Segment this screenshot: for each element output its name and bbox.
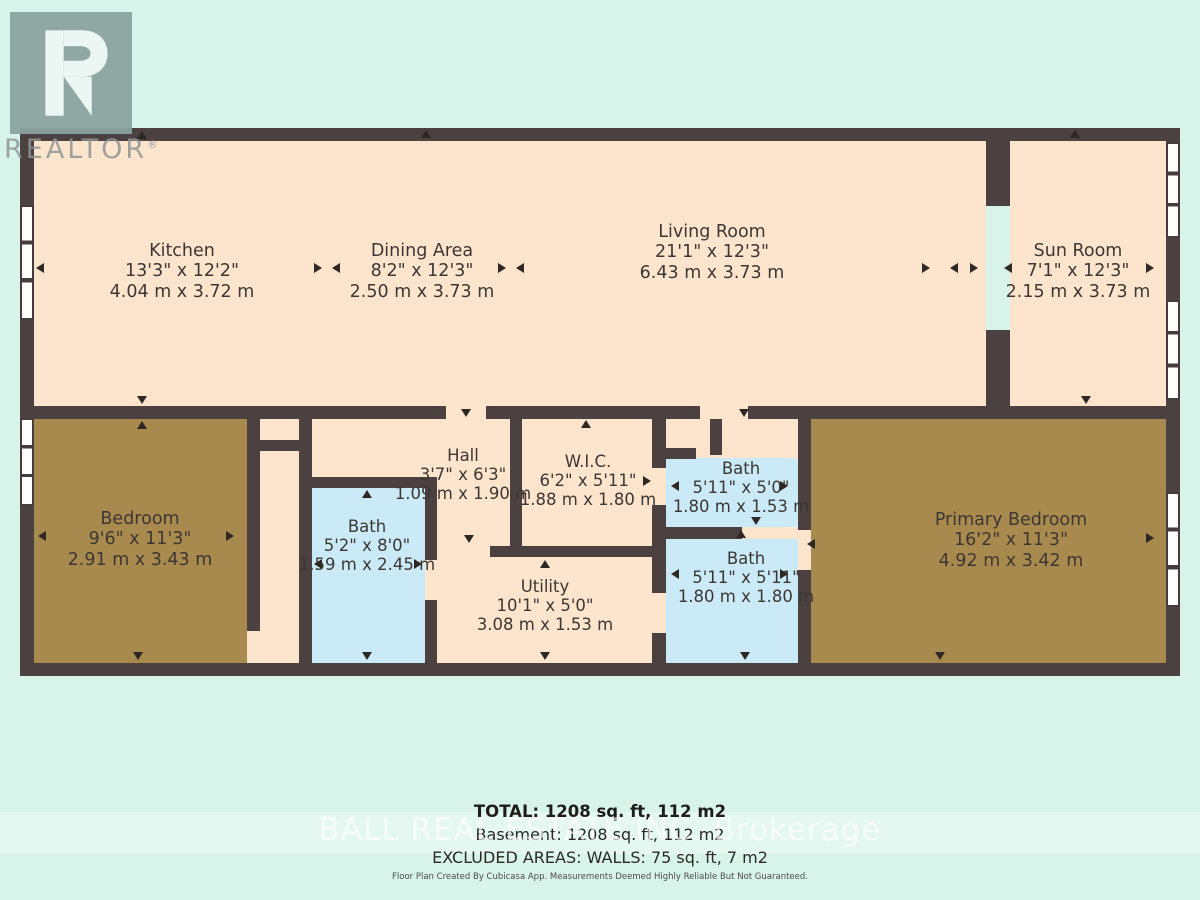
- wall-entry-stub: [710, 419, 722, 455]
- room-name: W.I.C.: [518, 452, 658, 471]
- arrow-icon: [540, 560, 550, 568]
- window-sunroom-right-top: [1166, 142, 1180, 238]
- room-label-dining-area: Dining Area 8'2" x 12'3" 2.50 m x 3.73 m: [322, 241, 522, 302]
- wall-closet-shelf: [252, 440, 302, 451]
- wall-sunroom-bottom: [986, 330, 1010, 419]
- arrow-icon: [922, 263, 930, 273]
- wall-divider: [20, 406, 446, 419]
- room-dims-metric: 2.15 m x 3.73 m: [978, 282, 1178, 302]
- arrow-icon: [362, 652, 372, 660]
- arrow-icon: [671, 481, 679, 491]
- room-dims-imperial: 5'2" x 8'0": [297, 536, 437, 555]
- wall-divider: [486, 406, 700, 419]
- arrow-icon: [38, 531, 46, 541]
- arrow-icon: [498, 263, 506, 273]
- room-name: Bath: [666, 549, 826, 568]
- wall-baths-divider: [652, 527, 742, 539]
- watermark-text: BALL REAL ESTATE INC. Brokerage: [0, 812, 1200, 848]
- room-name: Bath: [661, 459, 821, 478]
- room-dims-imperial: 8'2" x 12'3": [322, 261, 522, 281]
- arrow-icon: [36, 263, 44, 273]
- disclaimer-text: Floor Plan Created By Cubicasa App. Meas…: [0, 872, 1200, 882]
- room-dims-metric: 6.43 m x 3.73 m: [612, 263, 812, 283]
- room-dims-metric: 1.09 m x 1.90 m: [393, 484, 533, 503]
- room-dims-imperial: 21'1" x 12'3": [612, 242, 812, 262]
- arrow-icon: [421, 130, 431, 138]
- arrow-icon: [1081, 396, 1091, 404]
- window-bedroom-left: [20, 418, 34, 506]
- room-label-primary-bedroom: Primary Bedroom 16'2" x 11'3" 4.92 m x 3…: [911, 510, 1111, 571]
- window-primary-right: [1166, 492, 1180, 607]
- room-name: Kitchen: [82, 241, 282, 261]
- wall-sunroom-top: [986, 128, 1010, 206]
- arrow-icon: [226, 531, 234, 541]
- arrow-icon: [1004, 263, 1012, 273]
- room-dims-imperial: 6'2" x 5'11": [518, 471, 658, 490]
- room-dims-imperial: 10'1" x 5'0": [475, 596, 615, 615]
- room-dims-imperial: 5'11" x 5'11": [666, 568, 826, 587]
- room-dims-metric: 3.08 m x 1.53 m: [475, 615, 615, 634]
- arrow-icon: [935, 652, 945, 660]
- room-label-bath-lower: Bath 5'11" x 5'11" 1.80 m x 1.80 m: [666, 549, 826, 606]
- arrow-icon: [362, 490, 372, 498]
- room-label-kitchen: Kitchen 13'3" x 12'2" 4.04 m x 3.72 m: [82, 241, 282, 302]
- room-name: Dining Area: [322, 241, 522, 261]
- wall-bath-right-b: [425, 600, 437, 663]
- room-name: Sun Room: [978, 241, 1178, 261]
- arrow-icon: [740, 652, 750, 660]
- arrow-icon: [581, 420, 591, 428]
- arrow-icon: [780, 569, 788, 579]
- arrow-icon: [1146, 533, 1154, 543]
- room-dims-imperial: 13'3" x 12'2": [82, 261, 282, 281]
- room-dims-metric: 2.91 m x 3.43 m: [40, 550, 240, 570]
- arrow-icon: [137, 396, 147, 404]
- arrow-icon: [332, 263, 340, 273]
- realtor-wordmark-text: REALTOR: [4, 134, 147, 165]
- arrow-icon: [133, 652, 143, 660]
- arrow-icon: [314, 559, 322, 569]
- room-name: Primary Bedroom: [911, 510, 1111, 530]
- room-name: Bedroom: [40, 509, 240, 529]
- arrow-icon: [970, 263, 978, 273]
- room-label-bath-upper: Bath 5'11" x 5'0" 1.80 m x 1.53 m: [661, 459, 821, 516]
- room-label-living-room: Living Room 21'1" x 12'3" 6.43 m x 3.73 …: [612, 222, 812, 283]
- room-dims-metric: 4.04 m x 3.72 m: [82, 282, 282, 302]
- arrow-icon: [414, 559, 422, 569]
- room-dims-imperial: 3'7" x 6'3": [393, 465, 533, 484]
- realtor-logo-icon: [10, 12, 132, 134]
- arrow-icon: [314, 263, 322, 273]
- arrow-icon: [1146, 263, 1154, 273]
- room-label-hall: Hall 3'7" x 6'3" 1.09 m x 1.90 m: [393, 446, 533, 503]
- registered-mark-icon: ®: [147, 138, 158, 151]
- room-name: Hall: [393, 446, 533, 465]
- wall-baths-left-c: [652, 633, 666, 663]
- arrow-icon: [751, 517, 761, 525]
- window-kitchen-left: [20, 205, 34, 320]
- wall-divider: [748, 406, 1180, 419]
- arrow-icon: [1070, 130, 1080, 138]
- room-name: Living Room: [612, 222, 812, 242]
- room-dims-metric: 1.80 m x 1.80 m: [666, 587, 826, 606]
- arrow-icon: [516, 263, 524, 273]
- room-label-bedroom: Bedroom 9'6" x 11'3" 2.91 m x 3.43 m: [40, 509, 240, 570]
- arrow-icon: [643, 476, 651, 486]
- arrow-icon: [780, 481, 788, 491]
- room-label-wic: W.I.C. 6'2" x 5'11" 1.88 m x 1.80 m: [518, 452, 658, 509]
- arrow-icon: [540, 652, 550, 660]
- room-bath-mid: [312, 488, 425, 663]
- wall-bath-upper-top: [666, 448, 696, 459]
- room-dims-metric: 4.92 m x 3.42 m: [911, 551, 1111, 571]
- room-dims-metric: 2.50 m x 3.73 m: [322, 282, 522, 302]
- room-name: Bath: [297, 517, 437, 536]
- room-dims-imperial: 5'11" x 5'0": [661, 478, 821, 497]
- floorplan-page: Kitchen 13'3" x 12'2" 4.04 m x 3.72 m Di…: [0, 0, 1200, 900]
- room-dims-metric: 1.80 m x 1.53 m: [661, 497, 821, 516]
- room-name: Utility: [475, 577, 615, 596]
- arrow-icon: [739, 409, 749, 417]
- room-dims-metric: 1.88 m x 1.80 m: [518, 490, 658, 509]
- arrow-icon: [736, 530, 746, 538]
- arrow-icon: [950, 263, 958, 273]
- arrow-icon: [464, 535, 474, 543]
- realtor-wordmark: REALTOR®: [4, 134, 224, 165]
- arrow-icon: [671, 569, 679, 579]
- excluded-area: EXCLUDED AREAS: WALLS: 75 sq. ft, 7 m2: [0, 848, 1200, 867]
- arrow-icon: [807, 539, 815, 549]
- arrow-icon: [461, 409, 471, 417]
- room-dims-imperial: 16'2" x 11'3": [911, 530, 1111, 550]
- arrow-icon: [137, 421, 147, 429]
- wall-baths-left-b: [652, 505, 666, 593]
- wall-outer-bottom: [20, 663, 1180, 676]
- room-label-utility: Utility 10'1" x 5'0" 3.08 m x 1.53 m: [475, 577, 615, 634]
- window-sunroom-right-bottom: [1166, 300, 1180, 400]
- room-dims-imperial: 9'6" x 11'3": [40, 529, 240, 549]
